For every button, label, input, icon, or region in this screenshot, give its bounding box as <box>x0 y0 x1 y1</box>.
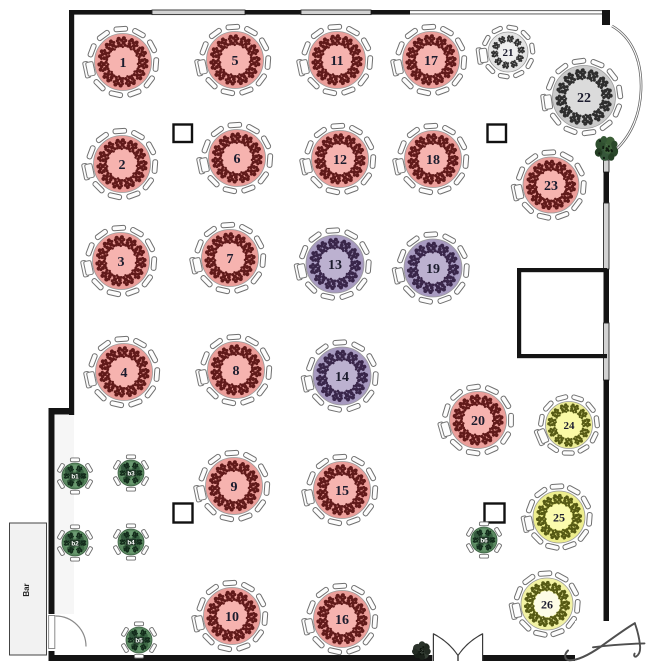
svg-text:4: 4 <box>121 366 128 381</box>
svg-text:24: 24 <box>564 420 576 432</box>
svg-text:15: 15 <box>335 484 349 499</box>
svg-text:22: 22 <box>577 91 591 106</box>
svg-text:1: 1 <box>120 56 127 71</box>
svg-text:b6: b6 <box>480 538 488 545</box>
svg-text:6: 6 <box>234 152 241 167</box>
svg-text:16: 16 <box>335 613 349 628</box>
svg-text:9: 9 <box>231 480 238 495</box>
svg-text:b4: b4 <box>127 540 135 547</box>
svg-text:b1: b1 <box>71 474 79 481</box>
svg-text:8: 8 <box>233 364 240 379</box>
svg-text:7: 7 <box>227 252 234 267</box>
svg-text:10: 10 <box>225 610 239 625</box>
svg-text:19: 19 <box>426 262 440 277</box>
svg-text:26: 26 <box>541 597 553 611</box>
svg-text:2: 2 <box>119 158 126 173</box>
svg-text:3: 3 <box>118 255 125 270</box>
svg-text:21: 21 <box>503 47 514 59</box>
svg-text:23: 23 <box>544 179 558 194</box>
svg-text:b3: b3 <box>127 471 135 478</box>
svg-text:18: 18 <box>426 153 440 168</box>
svg-text:b2: b2 <box>71 541 79 548</box>
svg-text:Bar: Bar <box>22 583 31 596</box>
svg-text:14: 14 <box>335 370 349 385</box>
svg-text:11: 11 <box>330 54 343 69</box>
svg-text:5: 5 <box>232 54 239 69</box>
svg-text:17: 17 <box>424 54 438 69</box>
svg-text:13: 13 <box>328 258 342 273</box>
svg-text:25: 25 <box>553 510 565 524</box>
svg-text:20: 20 <box>471 414 485 429</box>
svg-text:b5: b5 <box>135 638 143 645</box>
svg-text:12: 12 <box>333 153 347 168</box>
